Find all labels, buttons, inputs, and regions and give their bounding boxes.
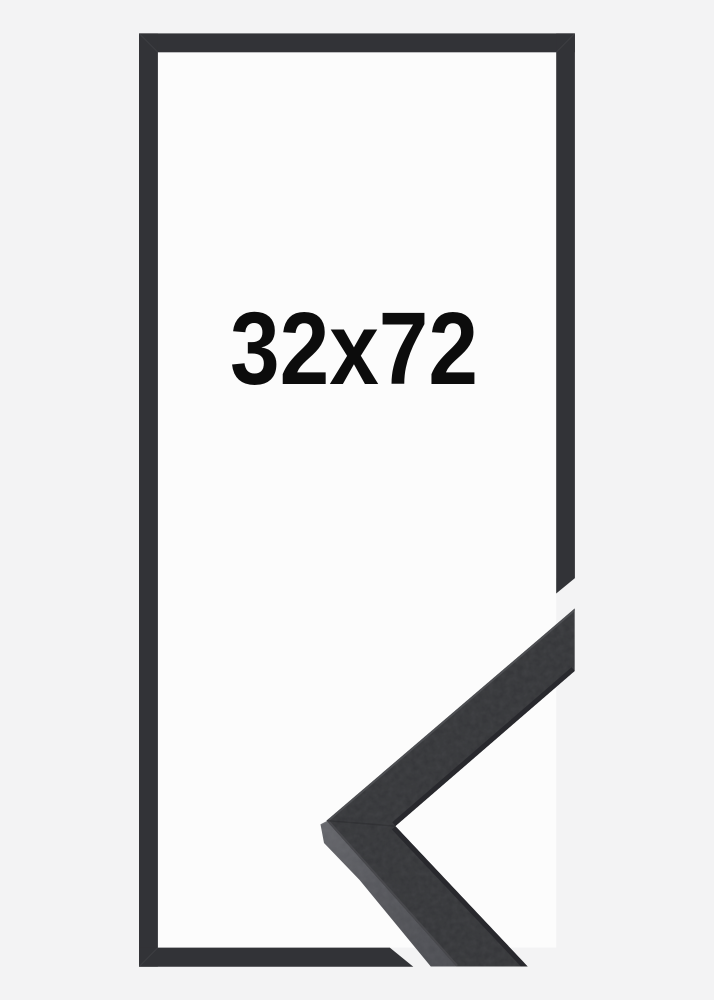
svg-text:32x72: 32x72 [230, 290, 478, 406]
